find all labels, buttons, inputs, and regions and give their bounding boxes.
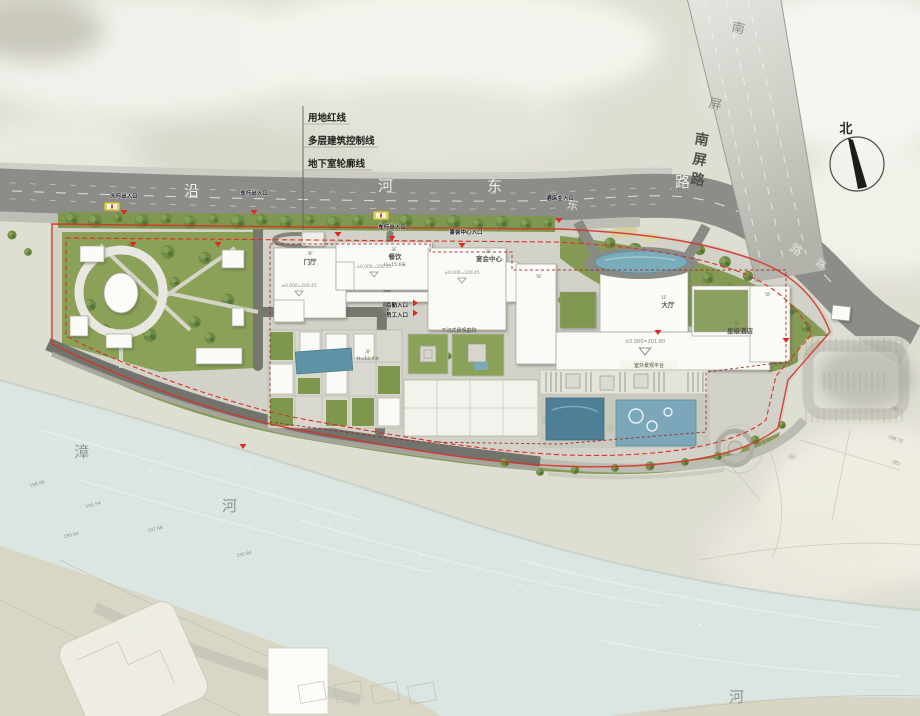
courtyard-pond bbox=[295, 348, 352, 374]
south-podium bbox=[404, 380, 538, 436]
entrance-banquet-label: 宴会中心入口 bbox=[449, 228, 482, 236]
legend-land-red-line: 用地红线 bbox=[307, 112, 347, 124]
entrance-pedestrian-label: 人行出入口 bbox=[110, 192, 138, 200]
road-char-he: 河 bbox=[378, 177, 393, 195]
hotel-garden-east bbox=[694, 290, 748, 332]
menting-elevation: ±0.000=200.45 bbox=[281, 283, 316, 289]
sunken-courtyard-label: 下沉式景观庭院 bbox=[441, 327, 476, 334]
entrance-hotel-main-label: 酒店主入口 bbox=[546, 194, 574, 202]
bridge-stack-nan: 南 bbox=[693, 130, 710, 149]
river-name-char-2: 河 bbox=[222, 497, 237, 515]
entrance-vehicle-label: 车行出入口 bbox=[240, 189, 268, 197]
block-height: H=12.4米 bbox=[357, 355, 380, 362]
entrance-logistics-label: 后勤入口 bbox=[386, 301, 408, 309]
bus-shelter-2 bbox=[373, 211, 389, 220]
far-bank-white-building bbox=[268, 648, 328, 714]
compass-north-label: 北 bbox=[839, 122, 852, 137]
river-name-char-1: 漳 bbox=[74, 443, 89, 461]
sunken-courtyards bbox=[408, 334, 504, 376]
entrance-staff-label: 员工入口 bbox=[386, 311, 408, 319]
yanhui-elevation: ±0.000=200.45 bbox=[444, 270, 479, 276]
entrance-vehicle2-label: 车行出入口 bbox=[378, 223, 406, 231]
small-east-building bbox=[831, 305, 850, 321]
legend-basement-outline: 地下室轮廓线 bbox=[308, 158, 366, 170]
hotel-elevation: ±0.000=201.80 bbox=[625, 339, 665, 345]
canyin-name: 餐饮 bbox=[388, 252, 403, 261]
sand-patch-2 bbox=[640, 233, 660, 243]
legend-multistory-control-line: 多层建筑控制线 bbox=[308, 135, 375, 147]
bridge-stack-ping: 屏 bbox=[691, 151, 708, 169]
hotel-lobby bbox=[600, 272, 688, 332]
block-floor: 3F bbox=[365, 349, 371, 355]
site-master-plan: 用地红线 多层建筑控制线 地下室轮廓线 北 沿 河 东 路 东 路 路 南 屏 … bbox=[0, 0, 920, 716]
hotel-hall-name: 大厅 bbox=[662, 300, 676, 309]
canyin-elevation: ±0.000=200.45 bbox=[356, 264, 391, 270]
survey-rock-3: (石) bbox=[788, 454, 796, 460]
terrace-colonnade bbox=[540, 370, 708, 394]
hotel-garden-west bbox=[560, 292, 596, 328]
hotel-east-wing-floor: 5F bbox=[765, 292, 771, 298]
water-garden bbox=[540, 394, 710, 448]
hotel-name: 星级酒店 bbox=[727, 326, 754, 335]
bus-shelter-1 bbox=[104, 202, 120, 211]
oval-building bbox=[104, 273, 138, 313]
courtyard-grid bbox=[268, 330, 402, 428]
yanhui-name: 宴会中心 bbox=[476, 254, 503, 263]
road-char-lu: 路 bbox=[675, 173, 690, 191]
menting-floor: 3F bbox=[307, 251, 313, 257]
hotel-west-wing-floor: 5F bbox=[536, 274, 542, 280]
terrace-label: 室外景观平台 bbox=[634, 362, 664, 369]
menting-name: 门厅 bbox=[304, 257, 318, 266]
road-char-yan: 沿 bbox=[184, 182, 199, 200]
road-char-dong: 东 bbox=[487, 177, 502, 195]
dark-pool bbox=[546, 398, 604, 440]
river-name-char-3: 河 bbox=[729, 688, 744, 706]
